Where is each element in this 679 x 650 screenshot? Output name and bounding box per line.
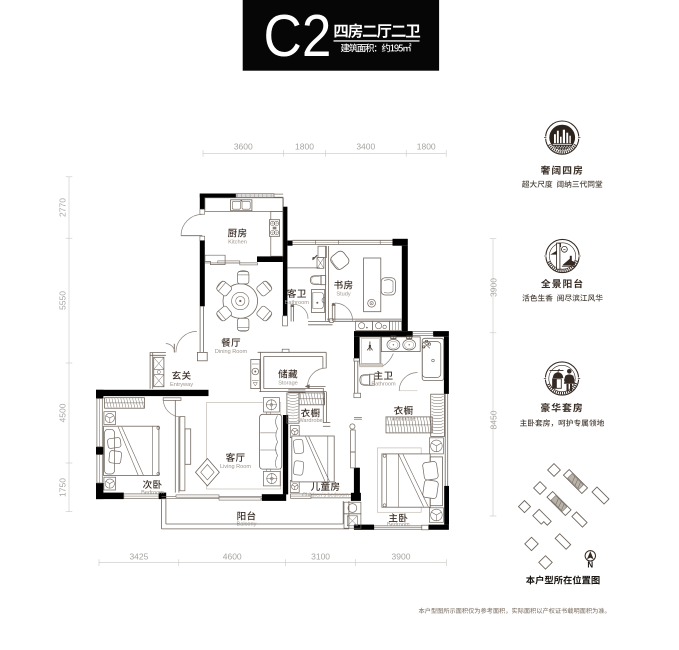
svg-text:8450: 8450 [489,410,499,429]
svg-text:C2: C2 [264,2,332,68]
svg-text:3600: 3600 [234,142,253,152]
svg-text:1800: 1800 [295,142,314,152]
svg-text:Bathroom: Bathroom [285,300,310,306]
svg-text:Children’s bedroom: Children’s bedroom [302,493,349,499]
svg-text:3425: 3425 [129,552,148,562]
svg-text:Storage: Storage [278,381,298,387]
svg-text:3400: 3400 [356,142,375,152]
svg-text:Bathroom: Bathroom [371,382,396,388]
svg-text:Balcony: Balcony [237,522,257,528]
svg-text:Kitchen: Kitchen [228,240,247,246]
svg-text:1750: 1750 [58,478,68,497]
svg-text:N: N [587,561,593,570]
svg-text:Study: Study [336,292,351,298]
svg-text:Bedroom: Bedroom [141,490,164,496]
svg-text:3900: 3900 [392,552,411,562]
svg-text:Bedroom: Bedroom [387,522,410,528]
svg-text:5550: 5550 [58,291,68,310]
svg-text:Wardrobe: Wardrobe [391,417,415,423]
svg-text:Living Room: Living Room [220,464,251,470]
svg-text:2770: 2770 [58,198,68,217]
svg-text:3900: 3900 [489,278,499,297]
svg-text:4600: 4600 [223,552,242,562]
svg-text:1800: 1800 [417,142,436,152]
svg-text:4500: 4500 [58,403,68,422]
svg-text:Entryway: Entryway [170,382,193,388]
svg-text:3100: 3100 [311,552,330,562]
svg-text:Wardrobe: Wardrobe [298,418,322,424]
svg-text:Dining Room: Dining Room [215,349,248,355]
